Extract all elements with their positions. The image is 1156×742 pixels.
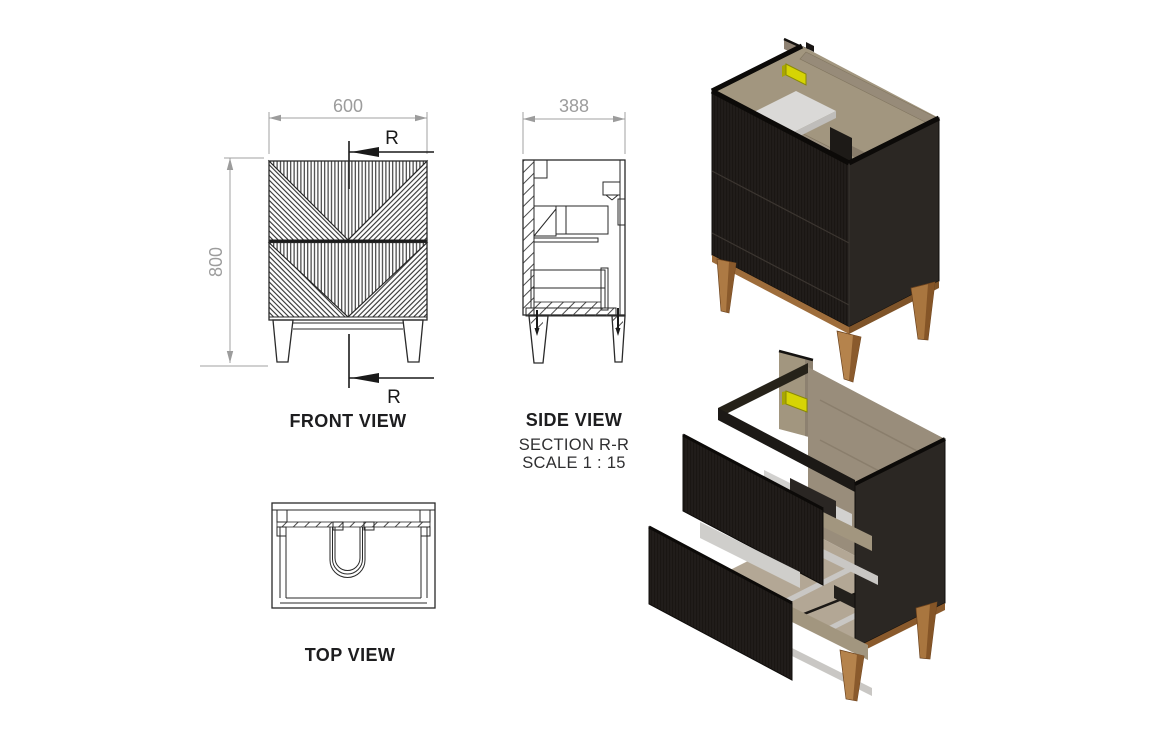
side-view: 388 [519,96,630,472]
front-width-value: 600 [333,96,363,116]
top-view: TOP VIEW [272,503,435,665]
front-legs [273,320,423,362]
side-depth-value: 388 [559,96,589,116]
render-open [649,351,945,701]
section-letter-bottom: R [387,387,401,408]
technical-drawing-sheet: 600 800 R [0,0,1156,742]
front-height-dimension: 800 [200,158,268,366]
wall-bracket [603,182,625,225]
top-edge-band [534,160,547,178]
front-panel-section [523,160,534,315]
dim-arrow-bottom [227,351,233,363]
corner-block-left [277,510,287,522]
front-width-dimension: 600 [269,96,427,154]
back-rail-top [277,522,430,527]
lower-drawer-section [531,268,608,310]
drawing-svg: 600 800 R [0,0,1156,742]
front-height-value: 800 [206,247,226,277]
side-section-body [523,160,625,316]
corner-block-right [420,510,430,522]
section-arrow-top [351,147,379,157]
front-cabinet-body [269,161,427,320]
side-view-label: SIDE VIEW [526,410,623,430]
scale-note: SCALE 1 : 15 [522,454,626,472]
dim-arrow-top [227,158,233,170]
bottom-panel-section [526,308,616,316]
plumbing-cutout [330,527,365,578]
side-depth-dimension: 388 [523,96,625,154]
front-leg-left [273,320,293,362]
dim-arrow-right [415,115,427,121]
upper-drawer-section [534,206,608,242]
section-title: SECTION R-R [519,436,630,454]
dim-arrow-right [613,116,625,122]
front-view-label: FRONT VIEW [290,411,407,431]
screw-right [616,328,621,336]
dim-arrow-left [523,116,535,122]
section-arrow-bottom [351,373,379,383]
front-view: 600 800 R [200,96,434,431]
section-letter-top: R [385,128,399,149]
render-assembled [712,39,939,382]
top-view-label: TOP VIEW [305,645,396,665]
dim-arrow-left [269,115,281,121]
screw-left [535,328,540,336]
front-leg-right [403,320,423,362]
